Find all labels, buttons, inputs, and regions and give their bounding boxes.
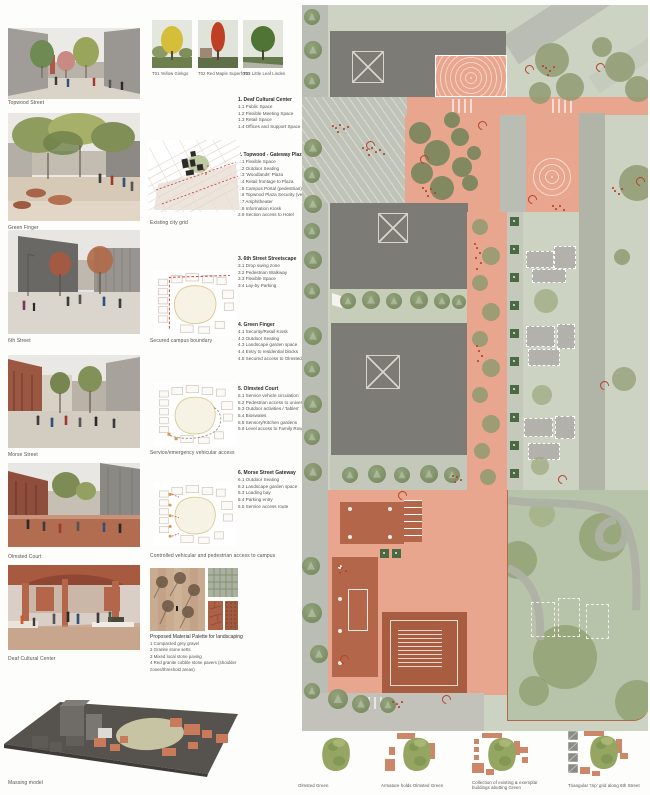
speckles [422, 187, 424, 189]
proposed-row-house [524, 418, 553, 437]
street-tree [302, 603, 322, 623]
concept-caption: Collection of existing & exemplar buildi… [472, 780, 552, 790]
concept-caption: Triangular 'trip' grid along 6th Street [568, 783, 648, 788]
proposed-row-house [555, 416, 575, 439]
tree [625, 76, 648, 102]
tree [482, 303, 500, 321]
material-photo-setts [208, 568, 238, 597]
street-tree [328, 689, 348, 709]
speckles [474, 243, 476, 245]
tree-photo-red-maple [198, 20, 238, 68]
tree [614, 249, 630, 265]
column [338, 629, 342, 633]
render-caption: Topwood Street [8, 100, 44, 106]
proposed-row-house [526, 251, 554, 268]
circular-lawn [528, 153, 576, 201]
material-photo-flagstone [208, 601, 223, 630]
tree [472, 387, 488, 403]
planter [510, 245, 519, 254]
speckles [452, 475, 454, 477]
speckles [332, 125, 334, 127]
tree [592, 37, 612, 57]
street-tree [304, 9, 320, 25]
material-title: Proposed Material Palette for landscapin… [150, 634, 265, 640]
tree [472, 219, 488, 235]
tree [362, 291, 380, 309]
street-tree [304, 251, 322, 269]
rooflight [352, 51, 384, 83]
tree [452, 157, 472, 177]
planter [510, 329, 519, 338]
render-6th-street [8, 230, 140, 334]
render-morse-street [8, 355, 140, 448]
planter [380, 549, 389, 558]
speckles [612, 187, 614, 189]
street-tree [304, 429, 320, 445]
column [388, 535, 392, 539]
column [348, 507, 352, 511]
tree [482, 359, 500, 377]
column [388, 507, 392, 511]
tree [529, 82, 551, 104]
tree [430, 176, 454, 200]
tree [444, 112, 460, 128]
tree [472, 331, 488, 347]
diagram-secured-boundary [150, 270, 240, 336]
marker-arc [556, 473, 569, 486]
material-palette-text: Proposed Material Palette for landscapin… [150, 634, 265, 673]
tree-label: T02 Red Maple Superform [198, 71, 250, 76]
tree [452, 295, 466, 309]
render-olmsted-court [8, 463, 140, 547]
crossing [452, 99, 472, 113]
proposed-row-house [557, 324, 575, 349]
street-tree [304, 195, 322, 213]
tree [462, 175, 478, 191]
tree [411, 162, 433, 184]
render-green-finger [8, 113, 140, 221]
topwood-plaza-band [407, 97, 648, 115]
exemplar-building-outline [586, 604, 609, 639]
street-tree [304, 327, 322, 345]
tree [451, 128, 469, 146]
render-caption: Olmsted Court [8, 554, 42, 560]
marker-arc [523, 63, 536, 76]
diagram-caption: Existing city grid [150, 220, 188, 226]
auditorium-seats [398, 629, 442, 667]
planter [510, 301, 519, 310]
tree-photo-ginkgo [152, 20, 192, 68]
street-tree [304, 283, 320, 299]
crossing [552, 99, 572, 113]
concept-caption: Armature holds Olmsted Green [381, 783, 453, 788]
olmsted-green [507, 490, 648, 721]
diagram-existing-grid [148, 140, 240, 212]
render-topwood-street [8, 28, 140, 99]
street-tree [304, 361, 320, 377]
concept-diagram-buildings [472, 733, 530, 777]
diagram-caption: Secured campus boundary [150, 338, 212, 344]
planter [510, 441, 519, 450]
planter [510, 273, 519, 282]
massing-model-photo [2, 672, 240, 777]
diagram-service-access [150, 382, 240, 446]
rooflight [366, 355, 400, 389]
render-caption: Deaf Cultural Center [8, 656, 56, 662]
existing-building [331, 323, 469, 455]
rooflight [378, 213, 408, 243]
tree [556, 73, 584, 101]
planter [510, 385, 519, 394]
street-tree [310, 645, 328, 663]
planter [510, 357, 519, 366]
tree [474, 443, 490, 459]
tree-photo-linden [243, 20, 283, 68]
street-tree [304, 41, 322, 59]
planter [510, 469, 519, 478]
proposed-row-house [526, 326, 555, 347]
presentation-board: Topwood Street Green Finger [0, 0, 650, 795]
street-tree [302, 557, 320, 575]
planter [510, 217, 519, 226]
render-caption: 6th Street [8, 338, 31, 344]
tree [342, 467, 358, 483]
lawn [534, 289, 558, 313]
material-photo-cobbles [225, 601, 238, 630]
material-items: 1 Compacted grey gravel2 Granite stone s… [150, 641, 265, 673]
concept-diagram-olmsted-green [318, 735, 354, 777]
tree [410, 291, 428, 309]
street-tree [304, 463, 322, 481]
material-photo-plaza [150, 568, 205, 631]
lawn [532, 385, 552, 405]
tree [482, 247, 500, 265]
tree [409, 122, 431, 144]
diagram-controlled-access [150, 482, 240, 546]
street-tree [304, 223, 320, 239]
concept-diagram-grid [568, 731, 630, 777]
site-plan [302, 5, 648, 731]
planter [392, 549, 401, 558]
street-tree [304, 395, 322, 413]
tree [386, 293, 402, 309]
exemplar-building-outline [558, 598, 580, 637]
tree [480, 469, 496, 485]
tree [535, 43, 569, 77]
street-tree [352, 695, 370, 713]
amphitheater-plaza [435, 55, 507, 97]
column [348, 535, 352, 539]
street-tree [304, 139, 322, 157]
dcc-wing [404, 500, 422, 542]
planter [510, 413, 519, 422]
speckles [392, 701, 394, 703]
tree [482, 415, 500, 433]
tree [394, 467, 410, 483]
tree [467, 146, 481, 160]
lawn [531, 457, 549, 475]
concept-caption: Olmsted Green [298, 783, 358, 788]
speckles [362, 147, 364, 149]
street-tree [304, 683, 320, 699]
speckles [552, 205, 554, 207]
proposed-row-house [554, 246, 576, 269]
render-deaf-cultural-center [8, 565, 140, 650]
proposed-row-house [528, 349, 560, 366]
street-tree [304, 73, 320, 89]
tree [434, 293, 450, 309]
diagram-caption: Service/emergency vehicular access [150, 450, 235, 456]
tree-label: T01 Yellow Ginkgo [152, 71, 188, 76]
east-road [579, 113, 605, 505]
render-caption: Morse Street [8, 452, 38, 458]
material-item: 4 Red granite cobble stone pavers (shoul… [150, 660, 265, 673]
exemplar-building-outline [531, 602, 555, 637]
speckles [542, 65, 544, 67]
tree [420, 465, 438, 483]
tree [612, 367, 636, 391]
street-tree [380, 697, 396, 713]
tree [472, 275, 488, 291]
atrium [348, 589, 368, 631]
column [338, 597, 342, 601]
diagram-caption: Controlled vehicular and pedestrian acce… [150, 553, 298, 559]
speckles [338, 565, 340, 567]
concept-diagram-armature [385, 733, 437, 777]
plaza-walk [500, 115, 526, 212]
street-tree [304, 167, 320, 183]
massing-model-caption: Massing model [8, 780, 43, 786]
tree [368, 465, 386, 483]
tree [340, 293, 356, 309]
speckles [476, 345, 478, 347]
tree-label: T03 Little Leaf Linden [243, 71, 285, 76]
proposed-row-house [532, 269, 566, 283]
